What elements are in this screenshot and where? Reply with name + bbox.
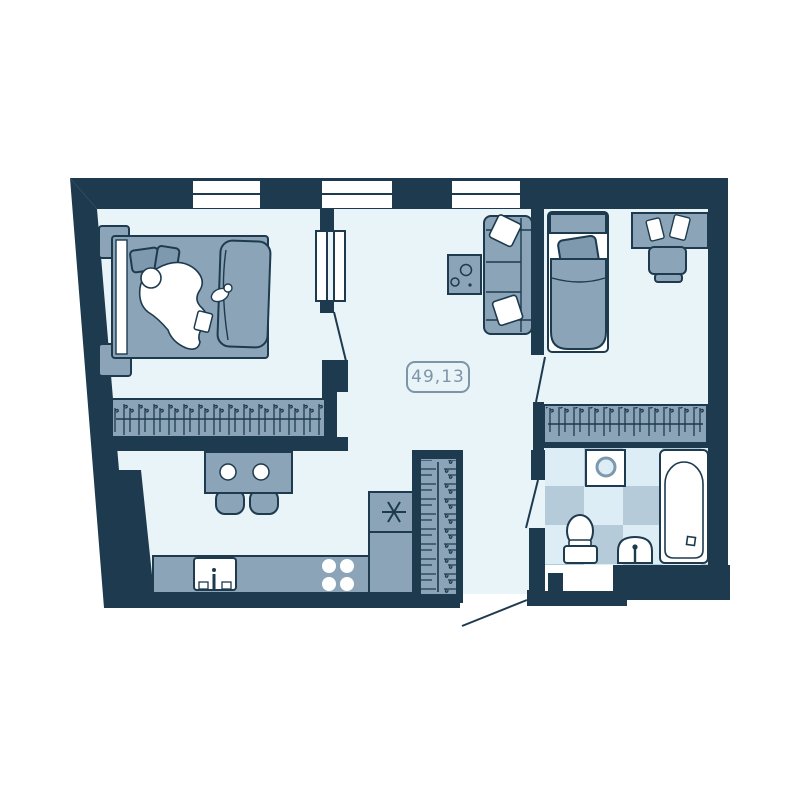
washing-machine [586, 450, 625, 486]
bed2-headboard [550, 214, 606, 233]
person-head [141, 268, 161, 288]
wall-right [708, 178, 728, 600]
area-label: 49,13 [406, 361, 470, 393]
bathtub-drain [686, 536, 695, 545]
bathtub [660, 450, 708, 563]
wall-bedroom-main-mid [322, 360, 348, 392]
desk-chair [649, 247, 686, 282]
wall-bedroom-main-bottom [108, 437, 348, 451]
bed-headboard-sheet [116, 240, 127, 354]
window-3 [452, 181, 520, 208]
bathroom-niche [545, 565, 613, 591]
bed2-duvet [551, 259, 606, 349]
wash-basin [618, 537, 652, 563]
wardrobe-main [112, 399, 325, 437]
desk [632, 213, 708, 248]
entrance-door-swing [462, 600, 527, 626]
wall-bathroom-left-upper [531, 450, 545, 480]
window-1 [193, 181, 260, 208]
wall-top [70, 178, 728, 209]
kitchen-sink [194, 558, 236, 590]
window-2 [322, 181, 392, 208]
wardrobe-second [544, 405, 707, 443]
plate-1 [220, 464, 236, 480]
plate-2 [253, 464, 269, 480]
floor-plan [0, 0, 800, 800]
wall-bottom-right-block [613, 565, 730, 600]
single-bed [548, 212, 608, 352]
coffee-table [448, 255, 481, 294]
bar-table [205, 452, 292, 493]
floor-plan-canvas: 49,13 [0, 0, 800, 800]
wall-bedroom-main-top [320, 209, 334, 232]
double-bed [112, 236, 271, 358]
decor-dot [468, 283, 471, 286]
wall-bedroom2-lower [533, 402, 544, 450]
hallway-coat-closet [412, 450, 463, 603]
wall-bathroom-left-lower [529, 528, 545, 606]
wall-bottom-kitchen [104, 593, 460, 608]
sofa [484, 214, 532, 334]
